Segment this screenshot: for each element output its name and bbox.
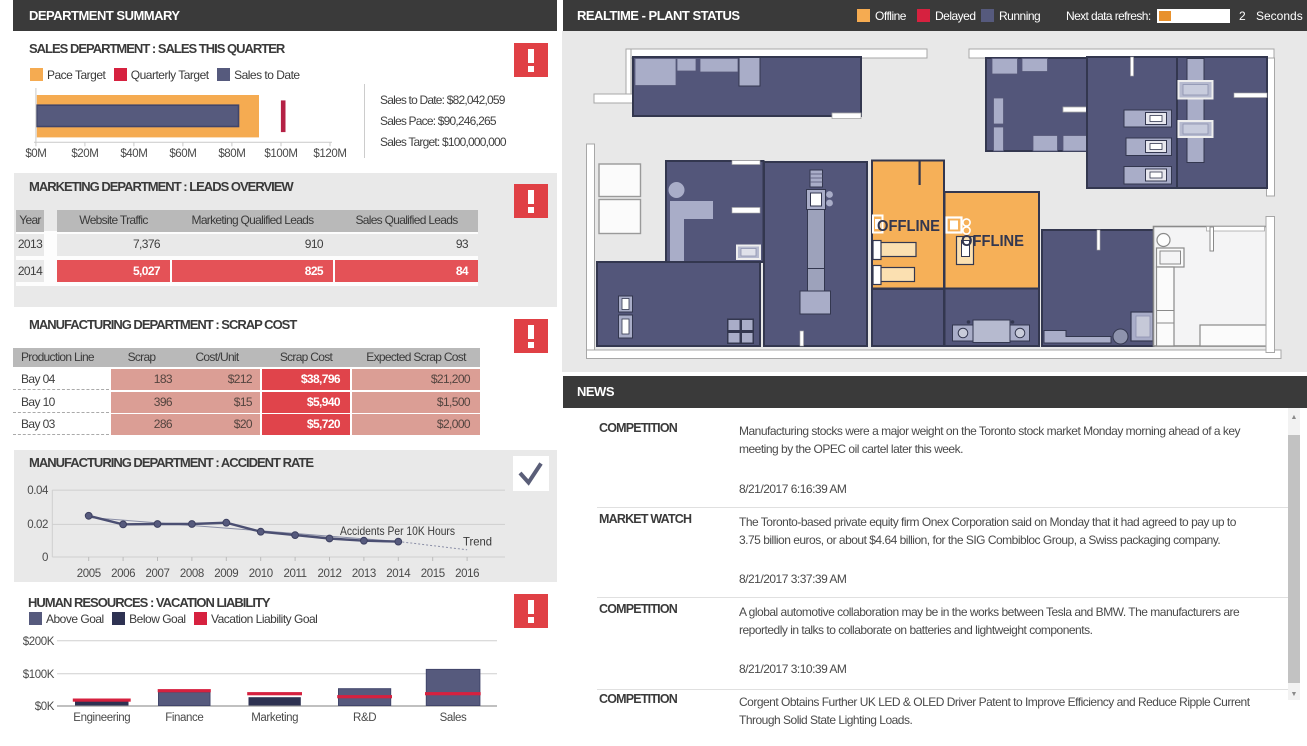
svg-text:$100K: $100K — [23, 669, 55, 681]
svg-text:$60M: $60M — [169, 148, 196, 160]
svg-text:2005: 2005 — [77, 568, 101, 580]
svg-text:2016: 2016 — [455, 568, 479, 580]
svg-text:2008: 2008 — [180, 568, 204, 580]
svg-text:2014: 2014 — [386, 568, 411, 580]
svg-text:2009: 2009 — [214, 568, 238, 580]
svg-text:OFFLINE: OFFLINE — [877, 218, 940, 235]
svg-text:2010: 2010 — [249, 568, 273, 580]
svg-text:R&D: R&D — [353, 712, 376, 724]
svg-text:$80M: $80M — [218, 148, 245, 160]
svg-text:Finance: Finance — [165, 712, 203, 724]
svg-text:2012: 2012 — [318, 568, 342, 580]
svg-text:0.04: 0.04 — [27, 485, 49, 497]
svg-text:Sales: Sales — [440, 712, 467, 724]
svg-text:$120M: $120M — [313, 148, 346, 160]
svg-text:$20M: $20M — [71, 148, 98, 160]
svg-text:2011: 2011 — [284, 568, 307, 580]
svg-text:$0M: $0M — [25, 148, 46, 160]
svg-text:$200K: $200K — [23, 636, 55, 648]
svg-text:Accidents Per 10K Hours: Accidents Per 10K Hours — [340, 524, 455, 538]
svg-text:OFFLINE: OFFLINE — [961, 233, 1024, 250]
svg-text:Marketing: Marketing — [251, 712, 298, 724]
svg-text:2006: 2006 — [111, 568, 135, 580]
svg-text:0.02: 0.02 — [27, 519, 48, 531]
svg-text:2013: 2013 — [352, 568, 376, 580]
svg-text:$40M: $40M — [120, 148, 147, 160]
svg-text:Engineering: Engineering — [73, 712, 130, 724]
svg-text:$100M: $100M — [264, 148, 297, 160]
svg-text:Trend: Trend — [463, 535, 492, 549]
svg-text:$0K: $0K — [35, 701, 55, 713]
svg-text:0: 0 — [42, 552, 48, 564]
svg-text:2007: 2007 — [146, 568, 170, 580]
svg-text:2015: 2015 — [421, 568, 445, 580]
